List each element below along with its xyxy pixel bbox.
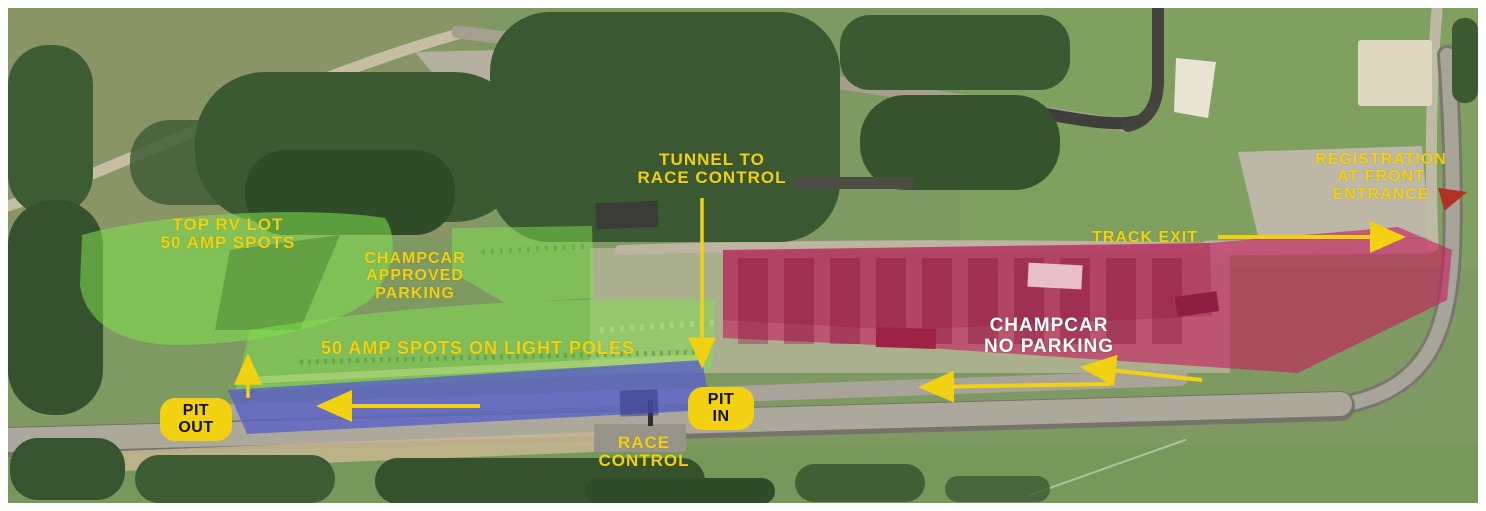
- mini-red-arrow: [1446, 194, 1460, 198]
- label-tunnel-to-race-control: TUNNEL TO RACE CONTROL: [638, 151, 787, 188]
- label-line: RACE: [598, 434, 689, 452]
- label-line: CHAMPCAR: [984, 316, 1114, 337]
- arrow-no-parking-lower-left: [928, 384, 1110, 387]
- label-line: CONTROL: [598, 452, 689, 470]
- badge-line: PIT: [183, 403, 209, 419]
- badge-line: OUT: [178, 420, 213, 436]
- pit-in-badge: PIT IN: [688, 387, 754, 430]
- label-line: REGISTRATION: [1315, 151, 1447, 168]
- label-registration: REGISTRATION AT FRONT ENTRANCE: [1315, 151, 1447, 203]
- label-line: APPROVED: [364, 267, 465, 284]
- badge-line: PIT: [708, 392, 734, 408]
- label-line: NO PARKING: [984, 337, 1114, 358]
- label-50amp-light-poles: 50 AMP SPOTS ON LIGHT POLES: [321, 339, 635, 358]
- label-line: TOP RV LOT: [161, 216, 296, 234]
- label-track-exit: TRACK EXIT: [1092, 229, 1198, 246]
- label-race-control: RACE CONTROL: [598, 434, 689, 471]
- label-line: RACE CONTROL: [638, 169, 787, 187]
- badge-line: IN: [713, 409, 730, 425]
- pit-out-badge: PIT OUT: [160, 398, 232, 441]
- label-line: AT FRONT: [1315, 168, 1447, 185]
- label-line: PARKING: [364, 285, 465, 302]
- arrow-no-parking-upper-left: [1090, 368, 1202, 380]
- label-line: TUNNEL TO: [638, 151, 787, 169]
- label-line: ENTRANCE: [1315, 186, 1447, 203]
- label-line: CHAMPCAR: [364, 250, 465, 267]
- label-top-rv-lot: TOP RV LOT 50 AMP SPOTS: [161, 216, 296, 253]
- label-champcar-approved-parking: CHAMPCAR APPROVED PARKING: [364, 250, 465, 302]
- label-line: 50 AMP SPOTS: [161, 234, 296, 252]
- paddock-parking-map: TOP RV LOT 50 AMP SPOTS CHAMPCAR APPROVE…: [0, 0, 1486, 511]
- label-champcar-no-parking: CHAMPCAR NO PARKING: [984, 316, 1114, 357]
